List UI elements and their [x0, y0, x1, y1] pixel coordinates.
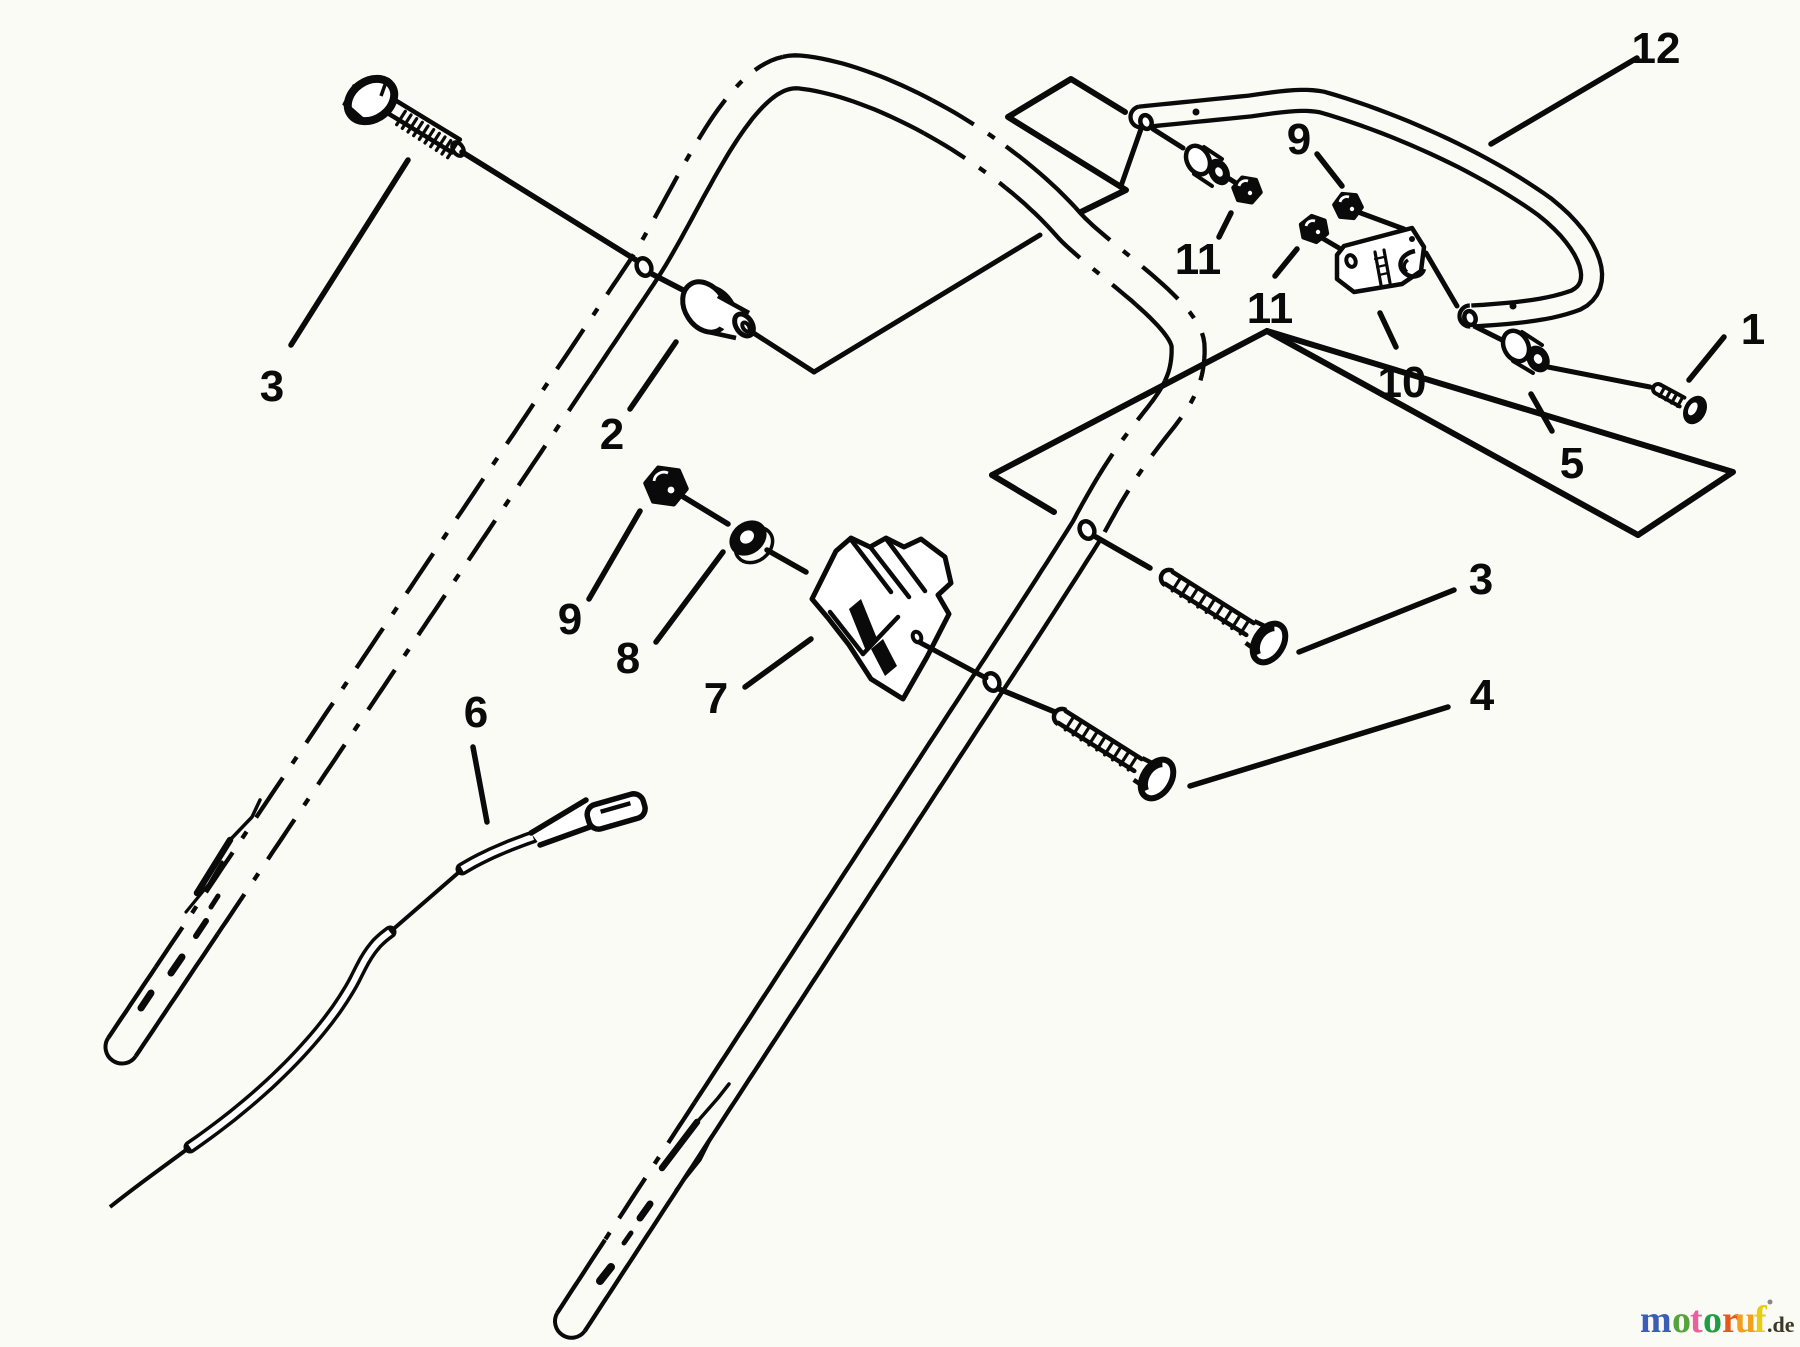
svg-text:o: o [1672, 1299, 1691, 1341]
svg-text:u: u [1735, 1299, 1756, 1341]
svg-text:.de: .de [1767, 1312, 1795, 1337]
svg-text:t: t [1690, 1299, 1703, 1341]
svg-text:3: 3 [1469, 555, 1493, 604]
svg-text:4: 4 [1470, 671, 1495, 720]
svg-text:2: 2 [600, 410, 624, 459]
svg-text:6: 6 [464, 688, 488, 737]
svg-text:12: 12 [1632, 24, 1681, 73]
svg-text:9: 9 [558, 595, 582, 644]
svg-text:11: 11 [1247, 284, 1294, 333]
svg-text:1: 1 [1741, 305, 1765, 354]
svg-text:m: m [1640, 1299, 1672, 1341]
svg-text:8: 8 [616, 634, 640, 683]
svg-text:7: 7 [704, 674, 728, 723]
svg-text:o: o [1703, 1299, 1722, 1341]
svg-text:f: f [1754, 1299, 1768, 1341]
svg-text:9: 9 [1287, 115, 1311, 164]
svg-text:5: 5 [1560, 439, 1584, 488]
svg-text:10: 10 [1378, 358, 1427, 407]
svg-text:11: 11 [1175, 235, 1222, 284]
svg-text:3: 3 [260, 362, 284, 411]
